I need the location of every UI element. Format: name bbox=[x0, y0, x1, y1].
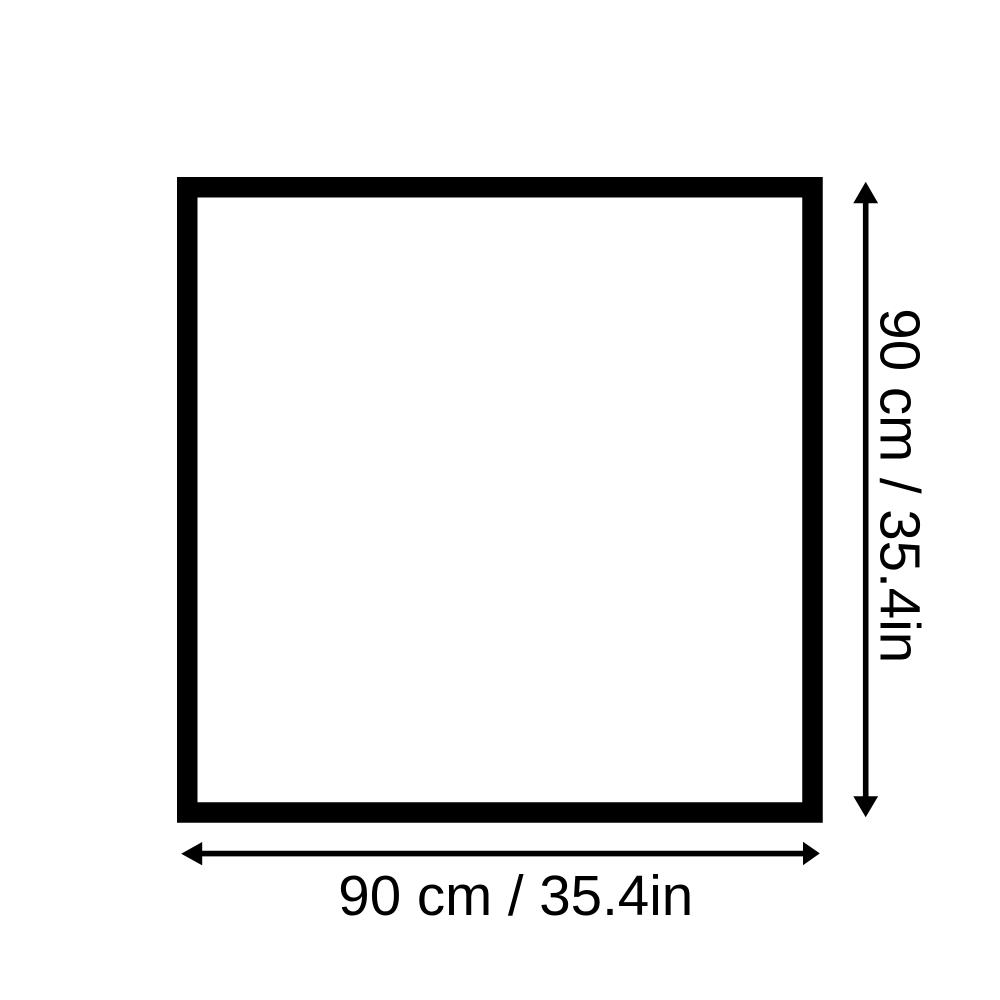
svg-text:90 cm / 35.4in: 90 cm / 35.4in bbox=[338, 864, 693, 927]
svg-text:90 cm / 35.4in: 90 cm / 35.4in bbox=[869, 308, 932, 663]
